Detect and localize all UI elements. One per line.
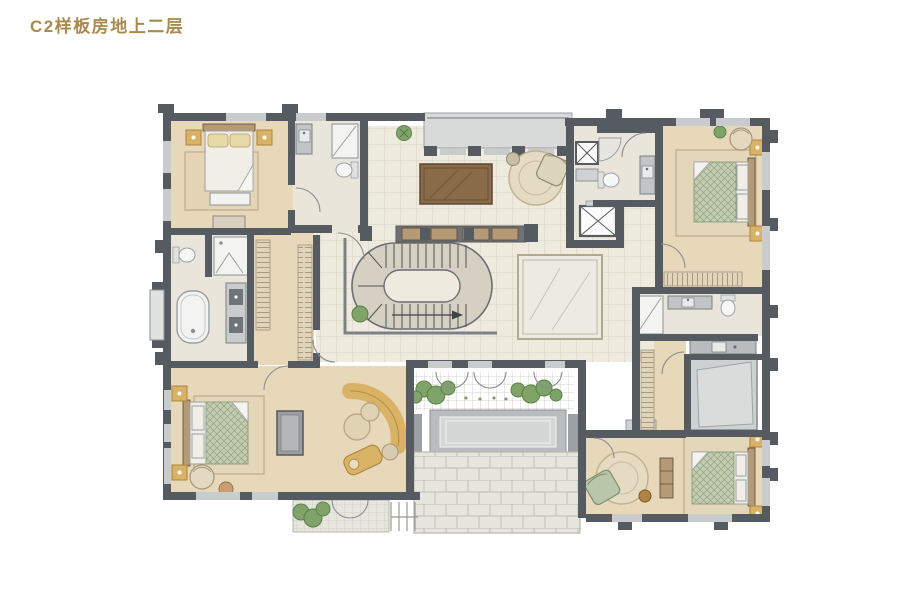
skylight-void [690, 359, 757, 430]
papasan-chair [730, 128, 752, 150]
pillow [736, 455, 746, 476]
pillow [192, 406, 204, 430]
toilet [336, 162, 358, 178]
pillow [208, 134, 228, 147]
double-vanity [226, 283, 246, 343]
hall-bench [396, 226, 526, 242]
potted-plant [397, 126, 412, 141]
water-feature [430, 410, 566, 454]
pillow [736, 480, 746, 501]
staircase [345, 238, 497, 333]
headboard [748, 448, 755, 506]
page: C2样板房地上二层 [0, 0, 900, 600]
balcony-north [424, 113, 572, 156]
side-table [382, 444, 398, 460]
headboard [183, 400, 190, 466]
papasan-chair [190, 465, 214, 489]
ottoman [361, 403, 379, 421]
kitchenette-counter [690, 340, 756, 354]
terrace-southwest [293, 500, 418, 532]
wood-stool [639, 490, 651, 502]
toilet [173, 247, 195, 263]
pillow [737, 194, 748, 219]
terrace-south [408, 372, 582, 533]
game-table [420, 164, 492, 204]
headboard [748, 158, 755, 226]
toilet [721, 295, 735, 316]
potted-plant [714, 126, 726, 138]
side-table [507, 153, 520, 166]
shaft-duct [576, 169, 598, 181]
pillow [230, 134, 250, 147]
bathtub [177, 291, 209, 343]
elevator-small [576, 142, 598, 164]
counter-sink [712, 342, 726, 352]
floor-plan-image [0, 0, 900, 600]
tv-cabinet [277, 411, 303, 455]
corridor-se-floor [654, 341, 686, 437]
bed-bench [210, 193, 250, 205]
pillow [192, 434, 204, 458]
pillow [737, 165, 748, 190]
stair-plant [352, 306, 368, 322]
bay-window [150, 290, 164, 340]
toilet [598, 172, 619, 188]
headboard [203, 124, 255, 131]
marble-rug [518, 255, 602, 339]
dresser [213, 216, 245, 229]
foot-bench [660, 458, 673, 498]
